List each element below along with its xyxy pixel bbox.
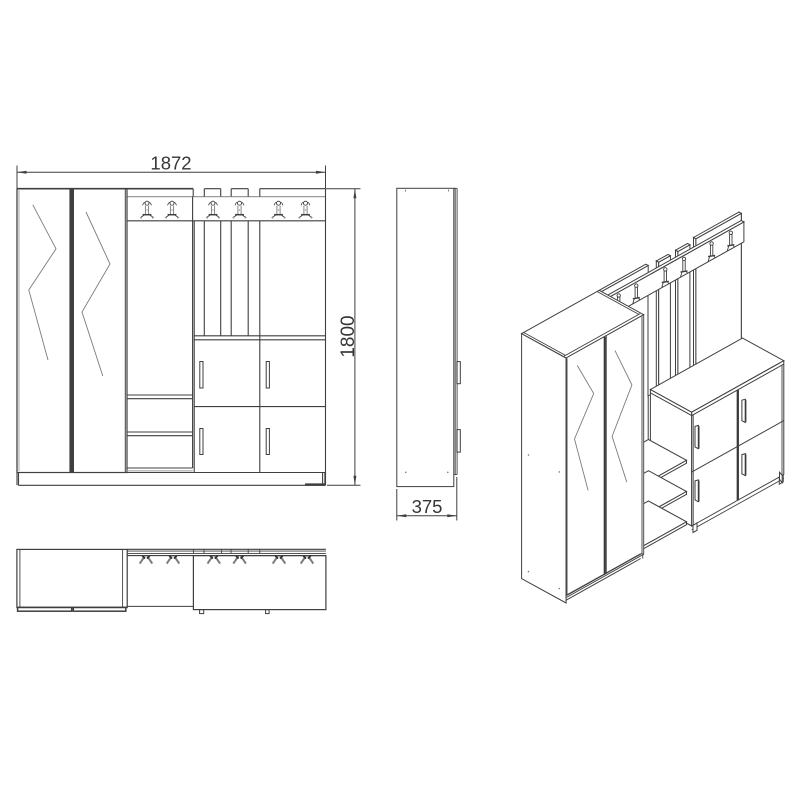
- svg-text:1872: 1872: [150, 153, 191, 174]
- svg-text:375: 375: [412, 496, 443, 517]
- svg-text:1800: 1800: [338, 315, 359, 357]
